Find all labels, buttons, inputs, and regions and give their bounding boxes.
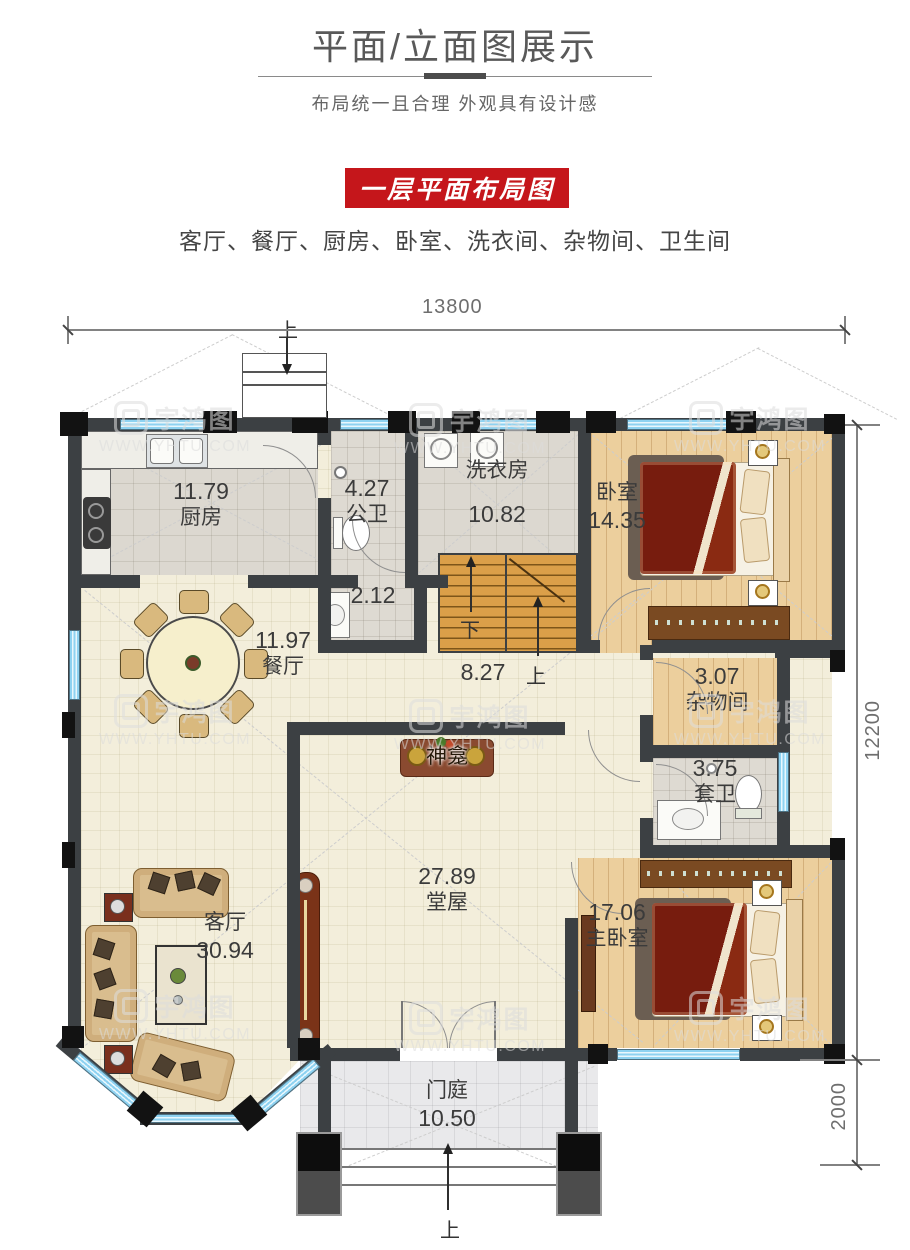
wall-ensuite-master bbox=[640, 845, 845, 858]
wall-pier bbox=[536, 411, 570, 433]
wall-right-divider bbox=[640, 645, 653, 660]
window-bedroom-top bbox=[627, 419, 732, 430]
roof-dash-line bbox=[620, 347, 759, 419]
wall-pier bbox=[298, 1038, 320, 1060]
room-label-laundry: 洗衣房 10.82 bbox=[442, 458, 552, 528]
staircase-divider bbox=[505, 553, 507, 653]
shrine-label: 神龛 bbox=[407, 744, 487, 770]
stairs-up-arrow-head bbox=[533, 596, 543, 607]
kitchen-sink-basin bbox=[179, 438, 203, 464]
wall-pier bbox=[203, 411, 237, 433]
stove-burner bbox=[88, 503, 104, 519]
wall-pier bbox=[824, 414, 845, 434]
wall-pier bbox=[388, 411, 416, 433]
dim-ext-line bbox=[800, 1059, 880, 1061]
nightstand-lamp bbox=[759, 884, 774, 899]
back-entry-arrow-head bbox=[282, 364, 292, 375]
nightstand-lamp bbox=[759, 1019, 774, 1034]
entry-up-label: 上 bbox=[440, 1214, 460, 1243]
wall-bedroom-bottom bbox=[591, 640, 600, 653]
wall-pier bbox=[62, 712, 75, 738]
dim-width-label: 13800 bbox=[422, 296, 483, 319]
wall-right-lower bbox=[832, 845, 845, 1061]
wall-pier bbox=[62, 1026, 84, 1048]
side-table-plant bbox=[110, 899, 125, 914]
wall-pier bbox=[830, 838, 845, 860]
dining-chair bbox=[179, 590, 209, 614]
master-pillow bbox=[749, 910, 780, 957]
room-label-dining: 11.97 餐厅 bbox=[228, 626, 338, 680]
page-title: 平面/立面图展示 bbox=[0, 18, 910, 70]
entry-door-leaf bbox=[494, 1001, 496, 1048]
sofa-pillow bbox=[94, 999, 115, 1020]
wardrobe-rail bbox=[647, 871, 785, 876]
wall-bedroom-left bbox=[578, 425, 591, 653]
entry-arrow-head bbox=[443, 1143, 453, 1154]
title-divider-accent bbox=[424, 73, 486, 79]
room-label-kitchen: 11.79 厨房 bbox=[146, 477, 256, 531]
wall-kitchen-bottom bbox=[248, 575, 318, 588]
entry-door-leaf bbox=[401, 1001, 403, 1048]
page-subtitle: 布局统一且合理 外观具有设计感 bbox=[0, 90, 910, 116]
washing-machine-door bbox=[430, 438, 452, 460]
room-label-public-bath: 4.27 公卫 bbox=[312, 474, 422, 528]
room-label-stair-hall: 8.27 bbox=[428, 658, 538, 686]
wall-right-upper bbox=[832, 425, 845, 658]
master-headboard bbox=[786, 899, 803, 1021]
back-steps bbox=[242, 353, 327, 418]
nightstand-lamp bbox=[755, 584, 770, 599]
wall-hall-top bbox=[287, 722, 565, 735]
wall-porch-right bbox=[565, 1061, 578, 1133]
wall-kitchen-bottom bbox=[68, 575, 140, 588]
sofa-pillow bbox=[174, 870, 195, 891]
tv-cabinet-end bbox=[298, 878, 313, 893]
washing-machine-door bbox=[476, 437, 498, 459]
dim-line-right bbox=[856, 425, 858, 1165]
window-dining-left bbox=[69, 630, 80, 700]
dim-porch-label: 2000 bbox=[828, 1082, 851, 1131]
window-ensuite-right bbox=[778, 752, 789, 812]
wall-pier bbox=[60, 412, 88, 436]
nightstand-lamp bbox=[755, 444, 770, 459]
stairs-down-arrow-line bbox=[470, 566, 472, 612]
master-pillow bbox=[750, 958, 780, 1004]
wall-kitchen-right bbox=[318, 431, 331, 445]
dim-height-label: 12200 bbox=[862, 700, 885, 761]
dim-line-top bbox=[68, 329, 845, 331]
bedroom-wardrobe bbox=[648, 606, 790, 640]
roof-dash-line bbox=[758, 348, 897, 420]
stairs-down-arrow-head bbox=[466, 556, 476, 567]
wall-pier bbox=[830, 650, 845, 672]
staircase bbox=[438, 553, 578, 653]
room-label-living: 客厅 30.94 bbox=[170, 910, 280, 964]
kitchen-sink-basin bbox=[150, 438, 174, 464]
wall-pier bbox=[588, 1044, 608, 1064]
wall-hall-bottom bbox=[497, 1048, 600, 1061]
dim-ext-line bbox=[845, 424, 880, 426]
stairs-up-label: 上 bbox=[526, 660, 546, 689]
entry-arrow-line bbox=[447, 1152, 449, 1210]
dining-chair bbox=[179, 714, 209, 738]
stove-burner bbox=[88, 527, 104, 543]
window-kitchen-top bbox=[120, 419, 210, 430]
wardrobe-rail bbox=[655, 620, 783, 625]
dining-centerpiece bbox=[185, 655, 201, 671]
room-label-storage: 3.07 杂物间 bbox=[662, 662, 772, 716]
room-label-bedroom: 卧室 14.35 bbox=[562, 480, 672, 534]
wall-pier bbox=[824, 1044, 845, 1064]
room-label-ensuite: 3.75 套卫 bbox=[660, 754, 770, 808]
window-bay-bottom bbox=[150, 1114, 242, 1123]
room-label-porch: 门庭 10.50 bbox=[392, 1078, 502, 1132]
side-table-plant bbox=[110, 1051, 125, 1066]
room-label-wash-nook: 2.12 bbox=[318, 581, 428, 609]
rooms-summary-line: 客厅、餐厅、厨房、卧室、洗衣间、杂物间、卫生间 bbox=[0, 222, 910, 256]
dim-ext-line bbox=[820, 1164, 880, 1166]
floor-plan-page: 平面/立面图展示 布局统一且合理 外观具有设计感 一层平面布局图 客厅、餐厅、厨… bbox=[0, 0, 910, 1250]
coffee-table-decor bbox=[170, 968, 186, 984]
wall-pier bbox=[586, 411, 616, 433]
wall-living-hall bbox=[287, 722, 300, 1048]
section-banner: 一层平面布局图 bbox=[345, 168, 569, 208]
porch-column bbox=[296, 1132, 342, 1216]
window-laundry-top bbox=[340, 419, 395, 430]
roof-dash-line bbox=[68, 334, 232, 418]
bedroom-pillow bbox=[739, 469, 770, 516]
coffee-table-decor bbox=[173, 995, 183, 1005]
bedroom-headboard bbox=[773, 458, 790, 582]
wall-porch-left bbox=[318, 1061, 331, 1133]
tv-slot bbox=[304, 900, 307, 1020]
room-label-main-hall: 27.89 堂屋 bbox=[392, 862, 502, 916]
dining-chair bbox=[120, 649, 144, 679]
window-master-bottom bbox=[617, 1049, 740, 1060]
wall-pier bbox=[62, 842, 75, 868]
room-label-master: 17.06 主卧室 bbox=[562, 898, 672, 952]
sofa-pillow bbox=[181, 1061, 202, 1082]
back-steps-line bbox=[242, 384, 327, 386]
porch-column bbox=[556, 1132, 602, 1216]
bedroom-pillow bbox=[740, 517, 770, 563]
wall-pier bbox=[452, 411, 480, 433]
wall-pier bbox=[726, 411, 756, 433]
stairs-up-arrow-line bbox=[537, 606, 539, 656]
ensuite-toilet-tank bbox=[735, 808, 762, 819]
stairs-down-label: 下 bbox=[460, 614, 480, 643]
wall-bedroom-bottom bbox=[652, 640, 845, 653]
